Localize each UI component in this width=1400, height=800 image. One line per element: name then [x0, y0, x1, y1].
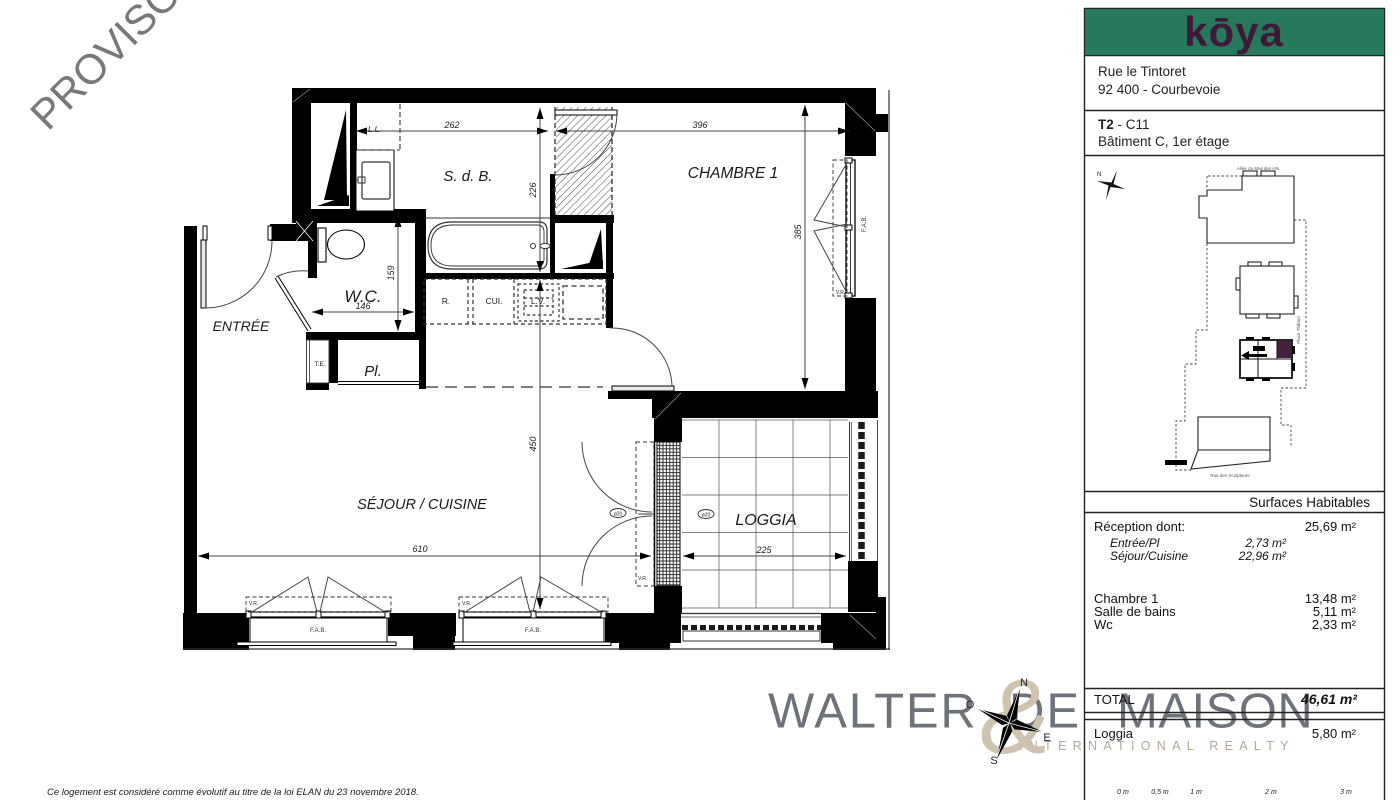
svg-text:Place Thibaut: Place Thibaut: [1296, 316, 1301, 344]
svg-text:Rue le Tintoret: Rue le Tintoret: [1098, 64, 1186, 79]
svg-text:159: 159: [386, 265, 396, 280]
svg-text:385: 385: [793, 224, 803, 240]
svg-text:PROVISOIRE: PROVISOIRE: [21, 0, 239, 138]
svg-text:2,33 m²: 2,33 m²: [1312, 617, 1357, 632]
svg-text:CUI.: CUI.: [486, 296, 503, 306]
svg-text:Séjour/Cuisine: Séjour/Cuisine: [1110, 549, 1188, 563]
svg-text:T2 - C11: T2 - C11: [1098, 117, 1150, 132]
svg-text:2 m: 2 m: [1264, 789, 1277, 796]
svg-text:Pl.: Pl.: [364, 363, 382, 380]
svg-text:226: 226: [528, 182, 538, 198]
svg-text:Surfaces Habitables: Surfaces Habitables: [1249, 495, 1370, 510]
svg-text:N: N: [1097, 172, 1101, 178]
svg-text:CHAMBRE 1: CHAMBRE 1: [688, 165, 778, 182]
svg-text:SÉJOUR / CUISINE: SÉJOUR / CUISINE: [357, 496, 487, 513]
svg-text:E: E: [1043, 732, 1050, 744]
svg-text:22,96 m²: 22,96 m²: [1238, 549, 1287, 563]
svg-text:ø20: ø20: [614, 512, 623, 518]
svg-text:Rue des Sculpteurs: Rue des Sculpteurs: [1210, 473, 1250, 478]
svg-text:ENTRÉE: ENTRÉE: [213, 318, 270, 334]
svg-text:5,80 m²: 5,80 m²: [1312, 726, 1357, 741]
svg-text:225: 225: [755, 545, 772, 555]
svg-text:450: 450: [528, 436, 538, 451]
svg-text:Bâtiment C, 1er étage: Bâtiment C, 1er étage: [1098, 134, 1229, 149]
svg-text:262: 262: [443, 120, 459, 130]
svg-text:WALTER: WALTER: [768, 685, 978, 739]
svg-text:F.A.B.: F.A.B.: [525, 628, 541, 634]
svg-text:L.V.: L.V.: [531, 296, 545, 306]
svg-text:92 400 - Courbevoie: 92 400 - Courbevoie: [1098, 82, 1220, 97]
svg-text:V.R.: V.R.: [836, 290, 845, 296]
svg-text:W.C.: W.C.: [344, 287, 381, 306]
svg-text:V.R.: V.R.: [638, 576, 647, 582]
svg-text:F.A.B.: F.A.B.: [310, 628, 326, 634]
svg-text:Entrée/Pl: Entrée/Pl: [1110, 536, 1160, 550]
svg-text:MAISON: MAISON: [1117, 685, 1313, 739]
svg-text:0 m: 0 m: [1117, 789, 1129, 796]
svg-text:3 m: 3 m: [1340, 789, 1352, 796]
svg-text:T.E.: T.E.: [314, 361, 325, 368]
svg-text:N: N: [1020, 677, 1028, 689]
svg-text:INTERNATIONAL REALTY: INTERNATIONAL REALTY: [1019, 739, 1295, 753]
svg-text:V.R.: V.R.: [249, 601, 258, 607]
svg-text:Loggia: Loggia: [1094, 726, 1134, 741]
svg-text:2,73 m²: 2,73 m²: [1244, 536, 1287, 550]
svg-text:25,69 m²: 25,69 m²: [1305, 519, 1357, 534]
svg-text:L.L.: L.L.: [368, 125, 381, 134]
svg-text:Wc: Wc: [1094, 617, 1113, 632]
svg-text:R.: R.: [442, 296, 451, 306]
svg-text:610: 610: [412, 544, 427, 554]
svg-text:ø20: ø20: [702, 513, 711, 519]
svg-text:F.A.B.: F.A.B.: [862, 216, 868, 232]
svg-text:TOTAL: TOTAL: [1094, 692, 1135, 707]
svg-text:396: 396: [692, 120, 707, 130]
svg-text:kōya: kōya: [1184, 8, 1284, 55]
svg-text:Allée du Mail des Hts: Allée du Mail des Hts: [1237, 166, 1280, 171]
svg-text:O: O: [966, 699, 975, 711]
svg-text:Réception dont:: Réception dont:: [1094, 519, 1185, 534]
svg-text:1 m: 1 m: [1190, 789, 1202, 796]
svg-text:LOGGIA: LOGGIA: [735, 512, 796, 529]
svg-text:S: S: [990, 755, 997, 767]
svg-text:V.R.: V.R.: [462, 601, 471, 607]
svg-text:46,61 m²: 46,61 m²: [1300, 691, 1357, 707]
svg-text:0,5 m: 0,5 m: [1151, 789, 1169, 796]
svg-text:S. d. B.: S. d. B.: [443, 168, 492, 185]
svg-text:Ce logement est considéré comm: Ce logement est considéré comme évolutif…: [47, 787, 419, 798]
